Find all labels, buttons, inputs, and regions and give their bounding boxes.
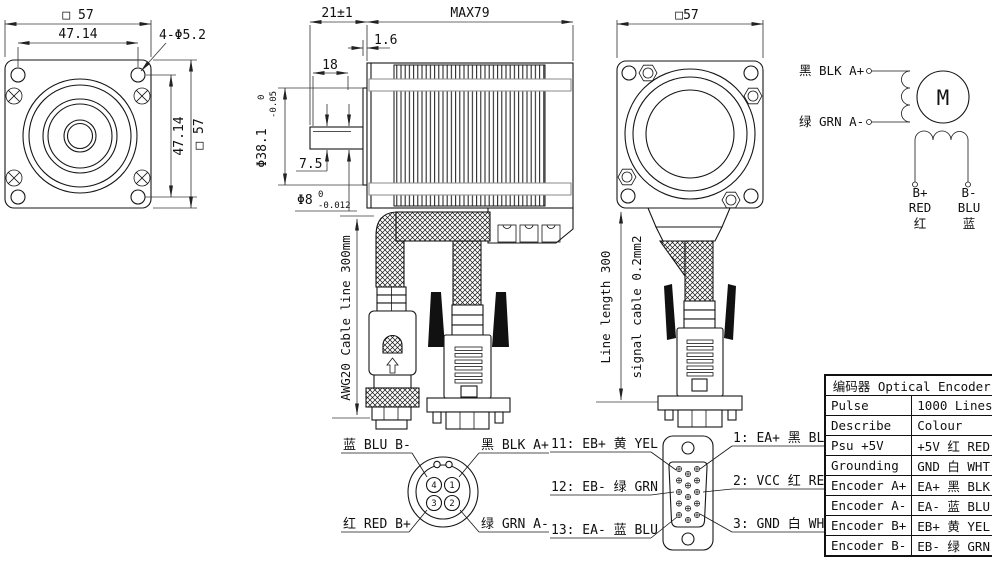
phase-a-plus-label: 黑 BLK A+ [799,63,864,78]
encoder-table: 编码器 Optical Encoder Pulse1000 Lines Desc… [824,374,992,557]
rear-cable-gland [648,208,730,303]
b-minus-label: B- [961,185,976,200]
dim-flat-length: 18 [322,58,338,73]
round-connector-knurl [366,388,419,407]
label-pin11: 11: EB+ 黄 YEL [551,437,658,452]
db-plug-end [678,410,722,427]
dim-pilot-tol-bottom: -0.05 [269,91,279,118]
terminal-a-minus [867,120,872,125]
db-connector-rear [658,284,742,427]
pin-4: 4 [431,481,436,491]
row-value: 1000 Lines [912,396,992,416]
key-notch [446,461,452,467]
dim-boss-height: 1.6 [374,33,397,48]
label-pin12: 12: EB- 绿 GRN [551,480,658,495]
pins: 4 1 3 2 [427,478,460,511]
row-value: EB+ 黄 YEL [912,516,992,536]
round-connector-tip [372,407,411,420]
label-pin1: 1: EA+ 黑 BLK [733,431,832,446]
b-plus-label: B+ [912,185,927,200]
row-label: Encoder B- [825,536,912,557]
dim-pilot-diameter: Φ38.1 [255,128,270,167]
label-blu-b-minus: 蓝 BLU B- [343,438,411,453]
b-plus-color-en: RED [909,200,932,215]
table-row: Encoder A+EA+ 黑 BLK [825,476,992,496]
pin-2: 2 [449,499,454,509]
round-connector-side [366,287,419,429]
dim-body-length: MAX79 [450,6,489,21]
front-flange-outline [5,60,151,208]
db-base [658,396,742,410]
db-plug-end [446,412,489,429]
front-view: □ 57 47.14 4-Φ5.2 47.14 □ 57 [5,8,207,208]
encoder-spec-table: 编码器 Optical Encoder Pulse1000 Lines Desc… [824,374,992,557]
cable-fold-wedge [660,241,685,276]
rear-view: □57 Line length 300 signal cable 0.2mm2 [596,8,763,427]
wiring-schematic: 黑 BLK A+ 绿 GRN A- M B+ RED 红 B- BLU 蓝 [799,63,980,231]
thumbscrew-right [724,284,736,340]
connector-outer-circle [408,457,478,527]
terminal-a-plus [867,69,872,74]
row-label: Encoder A- [825,496,912,516]
dim-shaft-length: 21±1 [321,6,352,21]
coil-b [915,131,968,140]
body-band-top [369,79,571,91]
rear-cable-drop [685,241,713,303]
round-connector-tip-end [376,420,407,429]
round-connector-neck [374,375,411,388]
row-value: EA- 蓝 BLU [912,496,992,516]
coil-a [902,71,911,122]
cable-band [396,212,490,241]
row-label: Encoder B+ [825,516,912,536]
line-length-label: Line length 300 [598,251,613,364]
dim-bolt-spacing-top: 47.14 [58,27,97,42]
dim-pilot-tol-top: 0 [257,95,267,100]
db-latch [692,379,707,391]
key-notch [434,461,440,467]
dim-shaft-tol-bottom: -0.012 [318,201,351,211]
table-row: Encoder B+EB+ 黄 YEL [825,516,992,536]
holes-callout: 4-Φ5.2 [159,28,206,43]
b-minus-color-cn: 蓝 [963,216,976,231]
rear-terminal-block [488,208,573,243]
db-latch [461,386,477,397]
dim-square57-rear: □57 [675,8,698,23]
row-label: Psu +5V [825,436,912,456]
dim-square57-top: □ 57 [62,8,93,23]
table-row: Pulse1000 Lines [825,396,992,416]
db-base [427,398,510,412]
label-pin2: 2: VCC 红 RED [733,473,832,489]
db-connector-side [427,292,510,429]
table-row: Encoder A-EA- 蓝 BLU [825,496,992,516]
dim-square57-right: □ 57 [192,118,207,149]
body-band-bottom [369,183,571,195]
row-label: Describe [825,416,912,436]
dim-shaft-tol-top: 0 [318,190,323,200]
row-value: Colour [912,416,992,436]
signal-cable-label: signal cable 0.2mm2 [629,236,644,379]
motor-symbol-label: M [937,86,950,110]
cable-drop-right [453,241,481,308]
table-row: Psu +5V+5V 红 RED [825,436,992,456]
label-pin13: 13: EA- 蓝 BLU [551,523,658,538]
thumbscrew-left [664,284,676,340]
row-value: EA+ 黑 BLK [912,476,992,496]
table-row: DescribeColour [825,416,992,436]
thumbscrew-left [428,292,445,347]
pin-1: 1 [449,481,454,491]
dim-shaft-diameter: Φ8 [297,193,313,208]
row-value: +5V 红 RED [912,436,992,456]
b-plus-color-cn: 红 [914,216,927,231]
row-value: EB- 绿 GRN [912,536,992,557]
label-grn-a-minus: 绿 GRN A- [481,517,549,532]
dim-flat-depth: 7.5 [299,157,322,172]
round-connector-window [383,336,402,354]
round-connector-pinout: 4 1 3 2 蓝 BLU B- 黑 BLK A+ 红 RED B+ 绿 GRN… [341,438,549,532]
encoder-table-title: 编码器 Optical Encoder [825,375,992,396]
db15-pinout: 11: EB+ 黄 YEL 12: EB- 绿 GRN 13: EA- 蓝 BL… [550,431,833,550]
table-row: GroundingGND 白 WHT [825,456,992,476]
phase-a-minus-label: 绿 GRN A- [799,114,864,129]
shaft [310,127,363,149]
cable-length-label: AWG20 Cable line 300mm [338,235,353,401]
row-label: Pulse [825,396,912,416]
rear-flange-outline [617,61,763,208]
dim-bolt-spacing-right: 47.14 [172,116,187,155]
label-red-b-plus: 红 RED B+ [343,516,411,532]
label-blk-a-plus: 黑 BLK A+ [481,438,549,453]
b-minus-color-en: BLU [958,200,981,215]
label-pin3: 3: GND 白 WHT [733,516,832,532]
thumbscrew-right [492,292,509,347]
row-label: Encoder A+ [825,476,912,496]
table-row: Encoder B-EB- 绿 GRN [825,536,992,557]
pin-3: 3 [431,499,436,509]
pilot-boss [363,88,367,185]
row-value: GND 白 WHT [912,456,992,476]
side-view: 21±1 MAX79 1.6 18 Φ38.1 0 -0.05 7.5 Φ8 0 [255,6,573,429]
row-label: Grounding [825,456,912,476]
